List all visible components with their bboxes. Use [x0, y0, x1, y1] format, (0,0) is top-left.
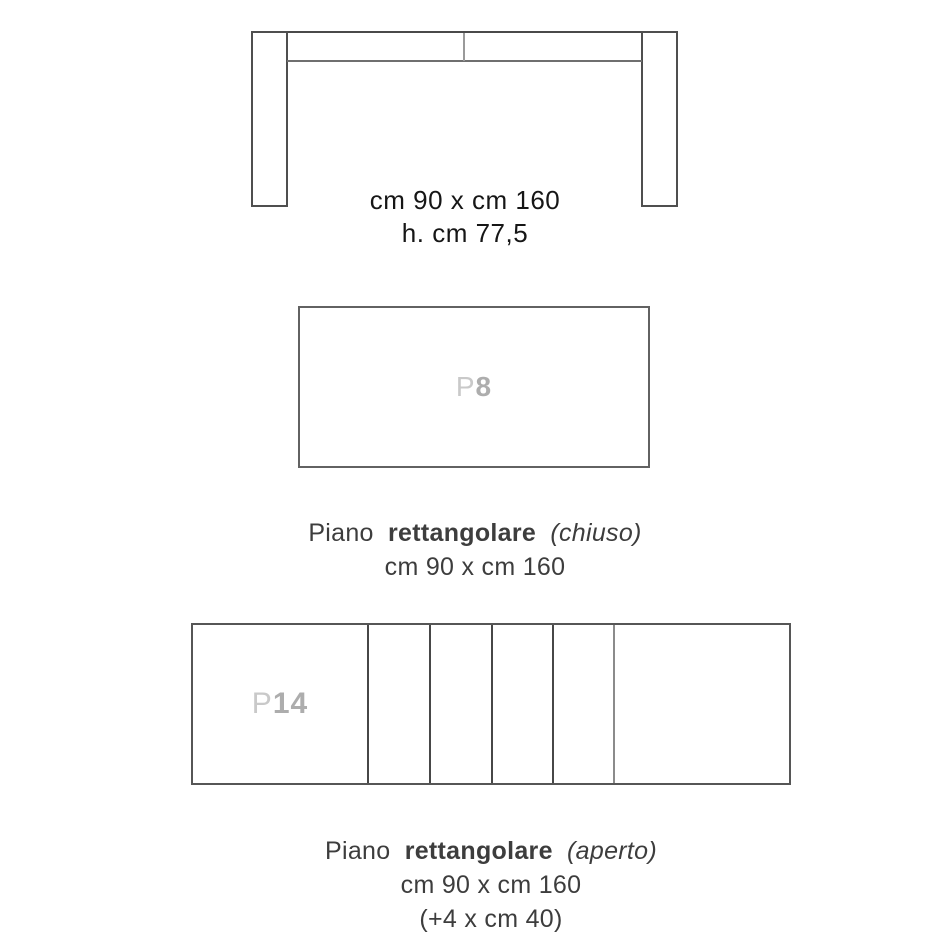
- panel-label-number: 8: [476, 371, 493, 402]
- caption-open: Piano rettangolare (aperto) cm 90 x cm 1…: [291, 834, 691, 936]
- leaf-divider-5: [613, 625, 615, 783]
- extension-seam-line: [463, 33, 465, 61]
- leaf-divider-1: [367, 625, 369, 783]
- table-leg-right: [641, 31, 678, 207]
- caption-closed-word-state: (chiuso): [550, 519, 641, 547]
- panel-label-prefix: P: [252, 687, 273, 720]
- panel-label-prefix: P: [456, 371, 476, 402]
- caption-closed-word-piano: Piano: [308, 519, 373, 547]
- caption-open-word-shape: rettangolare: [405, 837, 553, 865]
- front-view-dimension-height: h. cm 77,5: [240, 217, 690, 250]
- open-tabletop-main-panel: P14: [193, 625, 367, 783]
- caption-open-dimensions: cm 90 x cm 160: [291, 868, 691, 902]
- panel-label-p8: P8: [456, 371, 492, 403]
- caption-open-word-state: (aperto): [567, 837, 657, 865]
- caption-open-title: Piano rettangolare (aperto): [291, 834, 691, 868]
- caption-open-extension: (+4 x cm 40): [291, 902, 691, 936]
- leaf-divider-3: [491, 625, 493, 783]
- front-view-dimension-size: cm 90 x cm 160: [240, 184, 690, 217]
- leaf-divider-2: [429, 625, 431, 783]
- caption-closed: Piano rettangolare (chiuso) cm 90 x cm 1…: [275, 516, 675, 584]
- caption-open-word-piano: Piano: [325, 837, 390, 865]
- front-view-dimensions: cm 90 x cm 160 h. cm 77,5: [240, 184, 690, 250]
- panel-label-number: 14: [273, 687, 308, 720]
- caption-closed-title: Piano rettangolare (chiuso): [275, 516, 675, 550]
- closed-tabletop-rect: P8: [298, 306, 650, 468]
- table-leg-left: [251, 31, 288, 207]
- panel-label-p14: P14: [252, 687, 308, 721]
- caption-closed-word-shape: rettangolare: [388, 519, 536, 547]
- open-tabletop-rect: P14: [191, 623, 791, 785]
- product-spec-sheet: cm 90 x cm 160 h. cm 77,5 P8 Piano retta…: [0, 0, 950, 950]
- leaf-divider-4: [552, 625, 554, 783]
- caption-closed-dimensions: cm 90 x cm 160: [275, 550, 675, 584]
